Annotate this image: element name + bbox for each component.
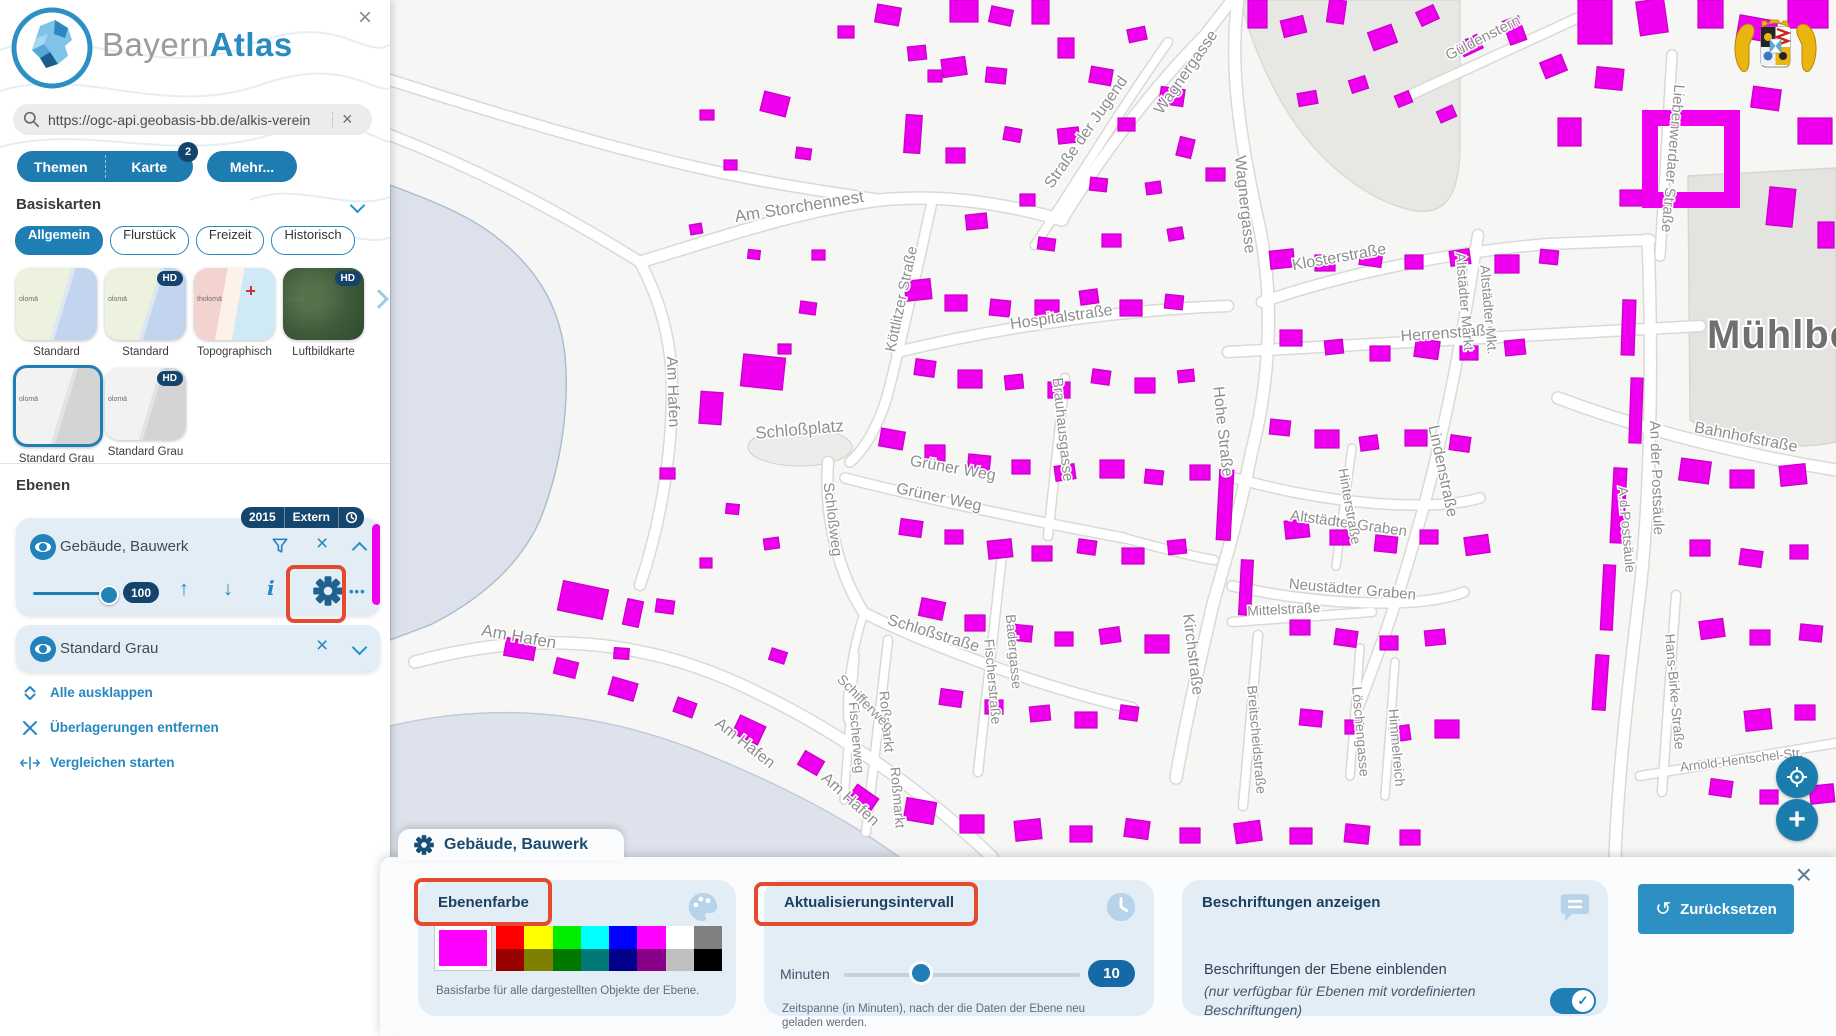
close-icon	[20, 718, 40, 738]
building	[899, 519, 923, 538]
building	[1766, 187, 1796, 228]
building	[1698, 0, 1723, 28]
palette-color[interactable]	[637, 926, 665, 949]
labels-toggle[interactable]: ✓	[1550, 988, 1596, 1014]
chevron-right-icon	[369, 289, 389, 309]
building	[928, 70, 942, 82]
palette-color[interactable]	[581, 926, 609, 949]
building	[726, 503, 740, 514]
building	[945, 295, 967, 311]
building	[1464, 534, 1490, 555]
basemap-chip-allgemein[interactable]: Allgemein	[15, 226, 103, 255]
bavaria-coat-of-arms	[1728, 15, 1823, 75]
building	[1326, 0, 1346, 24]
buildings-layer	[504, 0, 1835, 845]
building	[1795, 705, 1815, 720]
building	[1206, 168, 1225, 181]
thumb-image: tholomä	[194, 268, 275, 340]
link-unfold[interactable]: Alle ausklappen	[0, 676, 390, 711]
building	[939, 689, 963, 708]
building	[797, 751, 824, 776]
ebenenfarbe-card: Ebenenfarbe Basisfarbe für alle dargeste…	[418, 880, 736, 1016]
building	[1102, 234, 1121, 247]
building	[941, 56, 967, 77]
map-area	[1688, 168, 1836, 446]
building	[1790, 545, 1808, 559]
building	[1779, 464, 1807, 487]
palette-color[interactable]	[609, 926, 637, 949]
palette-color[interactable]	[609, 949, 637, 972]
building	[1124, 818, 1150, 839]
building	[1334, 629, 1358, 648]
building	[958, 370, 982, 388]
thumb-micro-label: olomä	[286, 296, 305, 303]
layer-remove-icon[interactable]: ×	[316, 634, 328, 658]
building	[673, 697, 697, 718]
thumb-label: Standard Grau	[105, 446, 186, 458]
tab-mehr[interactable]: Mehr...	[207, 151, 297, 182]
clock-icon	[1104, 890, 1138, 924]
building	[960, 815, 984, 833]
building	[1540, 54, 1568, 78]
karte-count-badge: 2	[178, 142, 198, 162]
year-badge: 2015	[241, 507, 285, 528]
building	[1690, 540, 1710, 556]
building	[1424, 629, 1445, 646]
thumb-micro-label: olomä	[108, 396, 127, 403]
compare-icon	[20, 753, 40, 773]
link-label: Vergleichen starten	[50, 755, 175, 770]
layer-card-gebaeude-bauwerk: 2015 Extern Gebäude, Bauwerk × 100 ↑ ↓ i	[16, 518, 380, 615]
basemap-chip-flurstück[interactable]: Flurstück	[110, 226, 189, 255]
settings-panel-title: Gebäude, Bauwerk	[444, 836, 588, 854]
building	[1405, 255, 1423, 269]
building	[1122, 548, 1144, 564]
building	[989, 299, 1011, 317]
basiskarten-collapse-button[interactable]	[352, 198, 363, 216]
check-icon: ✓	[1578, 993, 1589, 1009]
selected-color-swatch[interactable]	[435, 926, 491, 970]
building	[907, 45, 926, 61]
sidebar-close-icon[interactable]: ×	[358, 4, 372, 32]
street-label: Hohe Straße	[1209, 386, 1235, 478]
street-label: Grüner Weg	[895, 480, 983, 515]
basemap-thumbs-row2: olomäStandard GrauolomäHDStandard Grau	[16, 368, 186, 465]
basemap-thumb-standard-grau[interactable]: olomäHDStandard Grau	[105, 368, 186, 465]
building	[1592, 655, 1609, 711]
building	[1504, 339, 1525, 356]
building	[763, 537, 779, 550]
geolocate-button[interactable]	[1776, 756, 1818, 798]
basemap-chip-freizeit[interactable]: Freizeit	[196, 226, 265, 255]
bayernatlas-logo	[10, 6, 94, 90]
thumb-micro-label: olomä	[108, 296, 127, 303]
building	[1167, 539, 1186, 555]
building	[1144, 469, 1163, 485]
building	[795, 147, 811, 160]
settings-panel-tab[interactable]: Gebäude, Bauwerk	[398, 829, 624, 861]
search-icon	[23, 111, 40, 128]
layer-settings-panel: × Ebenenfarbe Basisfarbe für alle darges…	[380, 857, 1836, 1036]
unfold-icon	[20, 683, 40, 703]
building	[1621, 300, 1636, 355]
layer-settings-gear-icon[interactable]	[313, 576, 343, 606]
building	[1135, 378, 1155, 393]
labels-line2: (nur verfügbar für Ebenen mit vordefinie…	[1204, 982, 1504, 1020]
interval-slider-track[interactable]	[844, 973, 1080, 977]
basemap-thumb-luftbildkarte[interactable]: olomäHDLuftbildkarte	[283, 268, 364, 358]
layer-links: Alle ausklappenÜberlagerungen entfernenV…	[0, 676, 390, 781]
building	[553, 658, 578, 679]
building	[1798, 118, 1832, 144]
building	[1099, 627, 1121, 645]
building	[1118, 118, 1135, 131]
building	[1760, 790, 1778, 804]
brand-bold: Atlas	[210, 26, 293, 63]
palette-color[interactable]	[524, 949, 552, 972]
building	[1269, 419, 1290, 436]
building	[1297, 90, 1318, 106]
building	[1400, 830, 1420, 845]
building	[1004, 374, 1023, 390]
settings-gear-icon	[414, 835, 434, 855]
building	[1234, 820, 1263, 843]
building	[557, 581, 608, 620]
layer-visibility-toggle[interactable]	[30, 636, 56, 662]
building	[1127, 26, 1147, 42]
building	[1075, 712, 1097, 728]
search-clear-icon[interactable]: ×	[342, 109, 353, 130]
basemap-thumb-topographisch[interactable]: tholomäTopographisch	[194, 268, 275, 358]
building	[614, 647, 630, 659]
thumb-image: olomäHD	[105, 368, 186, 440]
building	[1449, 435, 1471, 453]
building	[1119, 705, 1139, 721]
building	[1248, 0, 1267, 28]
reset-button[interactable]: ↺ Zurücksetzen	[1638, 884, 1794, 934]
building	[769, 648, 788, 664]
toggle-knob: ✓	[1572, 990, 1594, 1012]
app-title: BayernAtlas	[102, 26, 293, 64]
building	[1799, 624, 1823, 642]
building	[1164, 294, 1183, 310]
building	[1595, 67, 1624, 91]
search-divider	[332, 112, 333, 128]
building	[1739, 549, 1763, 568]
building	[1290, 620, 1310, 635]
layer-move-up-button[interactable]: ↑	[179, 578, 189, 601]
building	[989, 6, 1014, 26]
building	[1020, 194, 1035, 206]
labels-line1: Beschriftungen der Ebene einblenden	[1204, 962, 1447, 978]
building	[1370, 346, 1390, 361]
building	[987, 539, 1013, 559]
layer-expand-icon[interactable]	[354, 640, 365, 658]
extern-badge: Extern	[285, 507, 339, 528]
ebenenfarbe-caption: Basisfarbe für alle dargestellten Objekt…	[436, 984, 726, 998]
link-label: Überlagerungen entfernen	[50, 720, 219, 735]
filter-icon[interactable]	[270, 536, 290, 561]
palette-color[interactable]	[637, 949, 665, 972]
brand-gray: Bayern	[102, 26, 210, 63]
interval-value-badge: 10	[1088, 960, 1135, 987]
ebenenfarbe-title: Ebenenfarbe	[438, 894, 529, 911]
building	[1744, 709, 1772, 732]
palette-color[interactable]	[553, 926, 581, 949]
street-label: Hospitalstraße	[1009, 302, 1114, 333]
building	[965, 615, 985, 631]
building	[914, 359, 936, 378]
basemap-thumb-standard-grau[interactable]: olomäStandard Grau	[16, 368, 97, 465]
chevron-up-icon	[352, 542, 368, 558]
building	[622, 599, 643, 628]
building	[1089, 177, 1107, 192]
building	[1290, 828, 1312, 844]
building	[1679, 458, 1712, 484]
building	[1070, 826, 1092, 842]
hd-badge: HD	[157, 271, 183, 286]
building	[1014, 819, 1042, 842]
thumb-label: Standard	[16, 346, 97, 358]
building	[1629, 378, 1643, 443]
palette-color[interactable]	[553, 949, 581, 972]
layer-info-button[interactable]: i	[267, 576, 275, 600]
map-marker-icon	[246, 286, 255, 295]
tab-group: Themen Karte	[17, 151, 193, 182]
reset-icon: ↺	[1655, 898, 1671, 921]
palette-color[interactable]	[496, 926, 524, 949]
building	[1558, 118, 1581, 146]
building	[1145, 635, 1169, 653]
plus-icon: +	[1788, 805, 1806, 835]
building	[700, 110, 714, 120]
thumb-image: olomäHD	[283, 268, 364, 340]
building	[875, 4, 902, 26]
building	[1145, 181, 1162, 195]
palette-color[interactable]	[694, 949, 722, 972]
building	[1100, 460, 1124, 478]
layer-color-stripe	[372, 524, 380, 605]
city-label: Mühlberg	[1707, 313, 1836, 357]
building	[740, 354, 785, 390]
divider	[0, 463, 390, 464]
building	[1003, 127, 1022, 143]
palette-color[interactable]	[524, 926, 552, 949]
reset-label: Zurücksetzen	[1680, 901, 1777, 918]
thumb-micro-label: olomä	[19, 396, 38, 403]
basemap-thumbs-row1: olomäStandardolomäHDStandardtholomäTopog…	[16, 268, 364, 358]
building	[1299, 709, 1323, 727]
map-area	[390, 185, 566, 640]
link-compare[interactable]: Vergleichen starten	[0, 746, 390, 781]
building	[1079, 289, 1099, 305]
layer-badges: 2015 Extern	[241, 507, 364, 528]
chevron-down-icon	[350, 198, 366, 214]
building	[1091, 369, 1111, 385]
building	[1578, 0, 1612, 44]
building	[904, 114, 923, 153]
palette-color[interactable]	[666, 926, 694, 949]
thumb-micro-label: olomä	[19, 296, 38, 303]
building	[1600, 565, 1615, 631]
comment-icon	[1558, 890, 1592, 924]
building	[1359, 435, 1379, 451]
link-close[interactable]: Überlagerungen entfernen	[0, 711, 390, 746]
building	[1190, 465, 1210, 480]
building	[778, 344, 791, 354]
thumbs-next-button[interactable]	[372, 292, 386, 311]
building	[1177, 369, 1194, 383]
building	[1176, 136, 1195, 158]
building	[700, 558, 712, 568]
building	[689, 223, 703, 235]
interval-caption: Zeitspanne (in Minuten), nach der die Da…	[782, 1002, 1112, 1030]
sidebar: × BayernAtlas https://ogc-api.geobasis-b…	[0, 0, 390, 1036]
thumb-image: olomä	[13, 365, 103, 447]
thumb-label: Topographisch	[194, 346, 275, 358]
layer-more-options-button[interactable]: •••	[349, 584, 366, 599]
ebenen-title: Ebenen	[16, 477, 70, 494]
palette-color[interactable]	[496, 949, 524, 972]
building	[1032, 546, 1052, 561]
interval-slider-thumb[interactable]	[912, 964, 930, 982]
beschriftungen-title: Beschriftungen anzeigen	[1202, 894, 1380, 911]
basiskarten-title: Basiskarten	[16, 196, 101, 213]
search-input[interactable]: https://ogc-api.geobasis-bb.de/alkis-ver…	[13, 104, 372, 135]
building	[918, 598, 945, 621]
search-value: https://ogc-api.geobasis-bb.de/alkis-ver…	[48, 112, 328, 128]
building	[1216, 470, 1234, 541]
aktualisierungsintervall-card: Aktualisierungsintervall Minuten 10 Zeit…	[764, 880, 1154, 1016]
thumb-image: olomä	[16, 268, 97, 340]
building	[699, 391, 723, 424]
thumb-image: olomäHD	[105, 268, 186, 340]
link-label: Alle ausklappen	[50, 685, 153, 700]
building	[660, 468, 675, 479]
shield	[1761, 20, 1790, 67]
layer-name: Standard Grau	[60, 640, 158, 657]
building	[1180, 828, 1200, 843]
building	[1344, 824, 1370, 844]
building	[1032, 0, 1049, 24]
palette-color[interactable]	[694, 926, 722, 949]
building	[1730, 470, 1754, 488]
building	[1120, 300, 1142, 316]
zoom-in-button[interactable]: +	[1776, 799, 1818, 841]
color-palette-grid	[496, 926, 722, 971]
building	[748, 249, 761, 259]
street-label: Schloßweg	[820, 482, 846, 558]
building	[812, 250, 825, 260]
building	[1620, 190, 1642, 206]
minuten-label: Minuten	[780, 966, 830, 982]
building	[1699, 618, 1725, 639]
tab-themen[interactable]: Themen	[17, 151, 105, 182]
building	[1315, 430, 1339, 448]
building	[724, 160, 737, 170]
building	[1380, 636, 1398, 650]
building	[1055, 632, 1073, 646]
time-badge-icon	[339, 511, 364, 524]
layer-visibility-toggle[interactable]	[30, 534, 56, 560]
building	[1167, 227, 1184, 241]
building	[1037, 237, 1056, 251]
street-label: Am Hafen	[663, 356, 682, 428]
building	[1280, 330, 1302, 346]
building	[799, 301, 817, 315]
building	[1012, 460, 1030, 474]
building	[950, 0, 978, 22]
palette-color[interactable]	[581, 949, 609, 972]
layer-name: Gebäude, Bauwerk	[60, 538, 188, 555]
building	[838, 26, 854, 38]
building	[1750, 630, 1770, 645]
thumb-micro-label: tholomä	[197, 296, 222, 303]
panel-close-icon[interactable]: ×	[1796, 859, 1812, 891]
opacity-slider-thumb[interactable]	[99, 585, 119, 605]
building	[1539, 249, 1558, 265]
building	[1029, 705, 1050, 722]
building	[1709, 779, 1733, 798]
basemap-thumb-standard[interactable]: olomäHDStandard	[105, 268, 186, 358]
thumb-label: Luftbildkarte	[283, 346, 364, 358]
basemap-chip-historisch[interactable]: Historisch	[271, 226, 354, 255]
palette-color[interactable]	[666, 949, 694, 972]
building	[946, 148, 965, 163]
building	[1058, 38, 1074, 58]
beschriftungen-card: Beschriftungen anzeigen Beschriftungen d…	[1182, 880, 1608, 1016]
building	[1405, 430, 1427, 446]
palette-icon	[686, 890, 720, 924]
layer-collapse-icon[interactable]	[354, 542, 365, 560]
aktualisierungsintervall-title: Aktualisierungsintervall	[784, 894, 954, 911]
building	[655, 599, 675, 614]
layer-card-standard-grau: Standard Grau ×	[16, 625, 380, 672]
building	[1324, 339, 1343, 355]
building	[760, 91, 790, 117]
hd-badge: HD	[157, 371, 183, 386]
building	[1435, 720, 1459, 738]
basemap-thumb-standard[interactable]: olomäStandard	[16, 268, 97, 358]
layer-move-down-button[interactable]: ↓	[223, 578, 233, 601]
building	[1077, 539, 1097, 555]
building	[1420, 530, 1438, 544]
building	[1495, 255, 1519, 273]
thumb-label: Standard	[105, 346, 186, 358]
building	[608, 677, 638, 701]
building	[985, 67, 1006, 84]
building	[1818, 222, 1834, 248]
map-area	[1240, 0, 1460, 211]
building	[965, 213, 987, 230]
chevron-down-icon	[352, 640, 368, 656]
building	[1636, 0, 1668, 36]
geolocate-icon	[1785, 765, 1809, 789]
building	[945, 530, 963, 544]
building	[1751, 86, 1782, 111]
building	[879, 428, 906, 450]
opacity-value-badge: 100	[123, 582, 159, 603]
basemap-chips: AllgemeinFlurstückFreizeitHistorisch	[15, 226, 355, 255]
layer-remove-icon[interactable]: ×	[316, 532, 328, 556]
hd-badge: HD	[335, 271, 361, 286]
